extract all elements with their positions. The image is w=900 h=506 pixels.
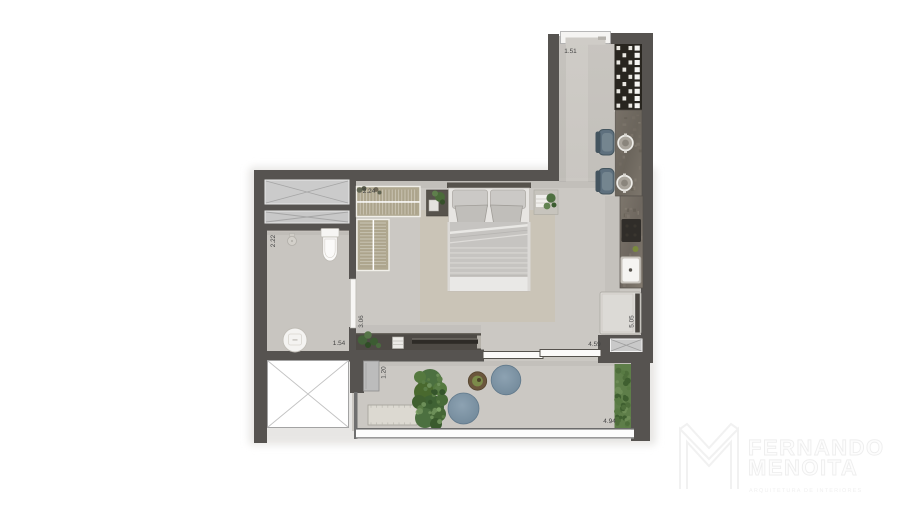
svg-text:ARQUITETURA DE INTERIORES: ARQUITETURA DE INTERIORES (749, 488, 862, 494)
svg-text:1.20: 1.20 (381, 366, 388, 379)
svg-text:4.94: 4.94 (603, 418, 616, 425)
svg-text:5.05: 5.05 (629, 315, 636, 328)
svg-text:4.59: 4.59 (588, 341, 601, 348)
svg-text:2.24: 2.24 (363, 188, 376, 195)
svg-text:2.22: 2.22 (270, 234, 277, 247)
svg-text:1.54: 1.54 (333, 340, 346, 347)
svg-text:1.51: 1.51 (564, 48, 577, 55)
svg-text:3.06: 3.06 (358, 315, 365, 328)
svg-text:MENOITA: MENOITA (748, 455, 858, 480)
